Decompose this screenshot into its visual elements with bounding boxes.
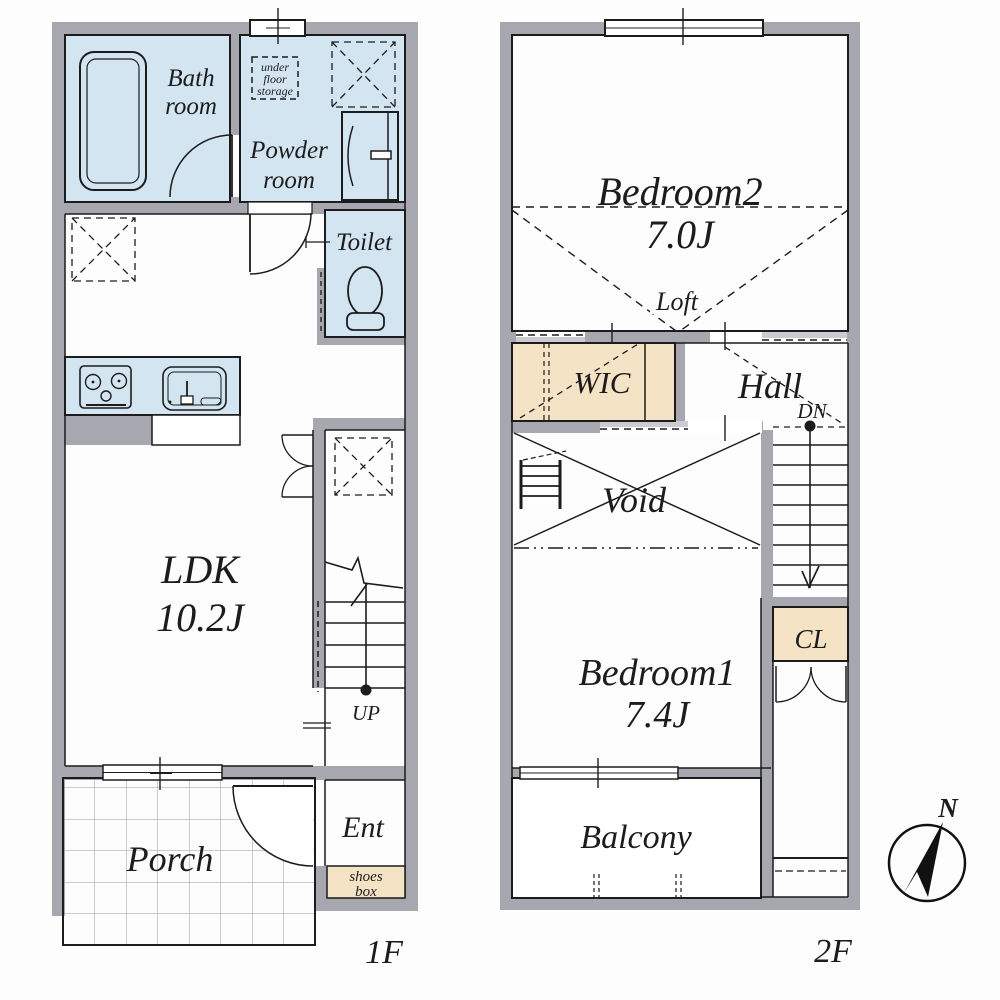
powder-door bbox=[248, 202, 312, 274]
cl-label: CL bbox=[794, 624, 827, 654]
toilet-label: Toilet bbox=[336, 229, 393, 256]
bedroom1-size-label: 7.4J bbox=[625, 694, 692, 736]
cl-double-doors bbox=[776, 666, 846, 702]
shoes-box-label: shoes bbox=[349, 869, 382, 885]
ladder-icon bbox=[521, 451, 566, 509]
under-floor-storage-label3: storage bbox=[257, 84, 294, 98]
floor-plan-drawing: Bath room Powder room under floor storag… bbox=[0, 0, 1000, 1000]
balcony-label: Balcony bbox=[580, 819, 692, 856]
stair-up-dot bbox=[361, 685, 372, 696]
ldk-label: LDK bbox=[160, 547, 241, 592]
counter-edge bbox=[152, 415, 240, 445]
floor-plan-page: Bath room Powder room under floor storag… bbox=[0, 0, 1000, 1000]
window-2f-top bbox=[605, 8, 763, 45]
closet-double-doors bbox=[282, 435, 313, 497]
north-label: N bbox=[937, 793, 959, 823]
loft-label: Loft bbox=[655, 287, 699, 316]
floor-2f-plan: Bedroom2 7.0J Loft WIC Hall DN Void Bedr… bbox=[500, 8, 860, 970]
powder-room-label2: room bbox=[263, 167, 315, 194]
up-label: UP bbox=[352, 701, 380, 725]
bathroom-label: Bath bbox=[167, 65, 214, 92]
bedroom1-label: Bedroom1 bbox=[579, 652, 736, 694]
dn-label: DN bbox=[796, 399, 827, 423]
bedroom2-size-label: 7.0J bbox=[646, 212, 716, 257]
stairs-2f bbox=[773, 427, 848, 588]
bathroom-label2: room bbox=[165, 93, 217, 120]
wic-label: WIC bbox=[574, 365, 631, 400]
compass-needle-icon bbox=[904, 822, 943, 897]
hall-label: Hall bbox=[737, 366, 802, 406]
void-label: Void bbox=[602, 480, 667, 520]
shoes-box-label2: box bbox=[355, 884, 377, 900]
compass: N bbox=[889, 793, 965, 901]
floor2-label: 2F bbox=[814, 933, 853, 970]
side-eaves-area bbox=[773, 858, 848, 871]
ldk-size-label: 10.2J bbox=[156, 595, 246, 640]
bedroom2-label: Bedroom2 bbox=[597, 169, 762, 214]
floor1-label: 1F bbox=[365, 934, 404, 971]
porch-label: Porch bbox=[126, 839, 214, 879]
powder-room-label: Powder bbox=[249, 137, 328, 164]
floor-1f-plan: Bath room Powder room under floor storag… bbox=[52, 8, 418, 971]
ent-label: Ent bbox=[341, 811, 384, 844]
